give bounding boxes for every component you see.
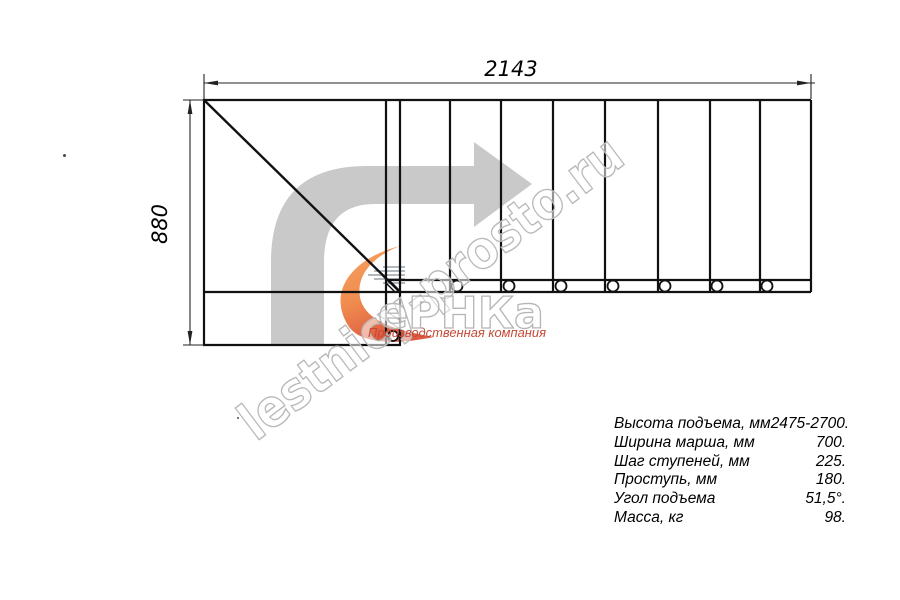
spec-value: 225. [816,453,846,472]
spec-value: 180. [816,471,846,490]
spec-label: Угол подъема [614,490,715,509]
logo-subtitle-text: Производственная компания [368,326,546,340]
spec-value: 98. [824,509,846,528]
staircase-plan-page: 2143 880 lestnicy-prosto.ru еРНКа Произв… [0,0,900,600]
spec-table: Высота подъема, мм 2475-2700. Ширина мар… [614,415,846,528]
spec-label: Высота подъема, мм [614,415,771,434]
spec-label: Проступь, мм [614,471,717,490]
spec-label: Шаг ступеней, мм [614,453,750,472]
spec-label: Ширина марша, мм [614,434,755,453]
speck-dot [63,154,66,157]
spec-label: Масса, кг [614,509,683,528]
speck-dot [237,417,239,419]
spec-row: Масса, кг 98. [614,509,846,528]
spec-value: 2475-2700. [771,415,849,434]
spec-row: Шаг ступеней, мм 225. [614,453,846,472]
spec-row: Угол подъема 51,5°. [614,490,846,509]
spec-value: 700. [816,434,846,453]
spec-row: Высота подъема, мм 2475-2700. [614,415,846,434]
spec-row: Проступь, мм 180. [614,471,846,490]
spec-value: 51,5°. [805,490,846,509]
spec-row: Ширина марша, мм 700. [614,434,846,453]
